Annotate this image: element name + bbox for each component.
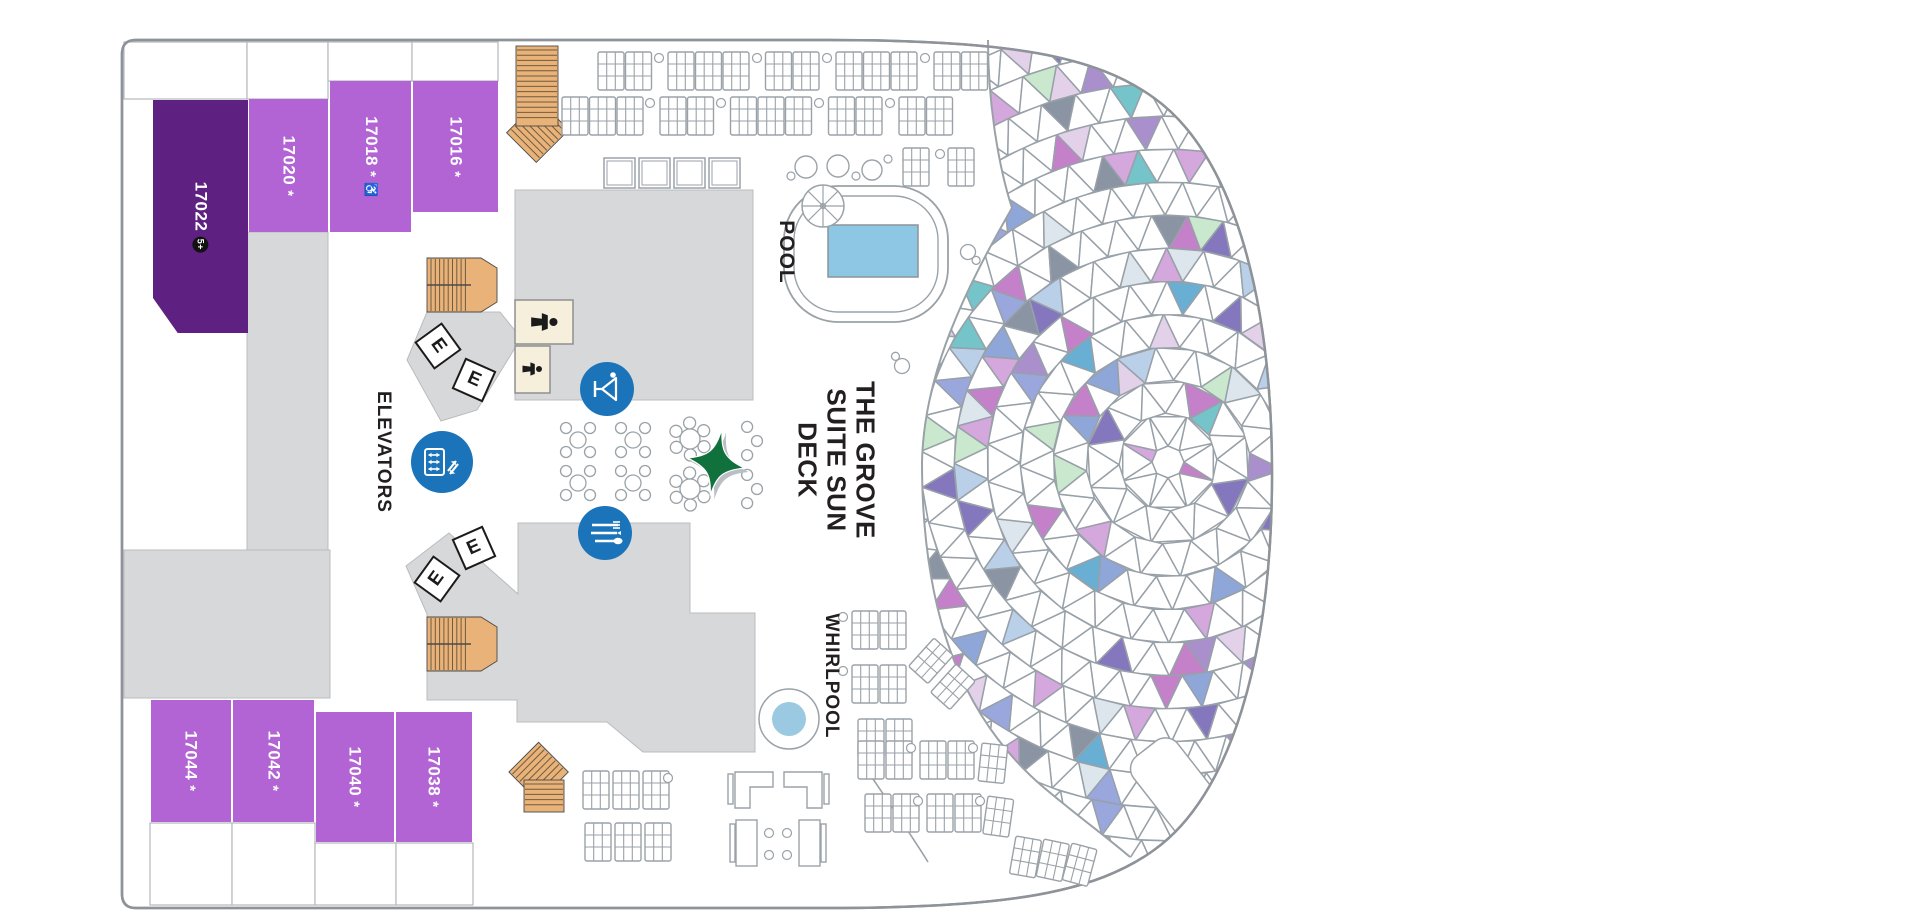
cabin-17020[interactable]: 17020*	[249, 99, 328, 232]
cabin-17044[interactable]: 17044*	[151, 700, 231, 822]
deck-name-label: THE GROVE SUITE SUN DECK	[792, 340, 879, 580]
cabin-number: 17018	[361, 116, 381, 166]
dining-icon	[578, 506, 632, 560]
cabin-17016[interactable]: 17016*	[413, 81, 498, 212]
cabin-17018[interactable]: 17018*♿	[330, 81, 411, 232]
bar-icon	[580, 362, 634, 416]
cabin-number: 17042	[264, 730, 284, 780]
cabin-number: 17016	[446, 116, 466, 166]
cabin-number: 17020	[279, 135, 299, 185]
cabin-number: 17022	[191, 181, 211, 231]
cabin-number: 17038	[424, 746, 444, 796]
accessible-icon: ♿	[364, 182, 378, 197]
cabin-number: 17040	[345, 746, 365, 796]
cabin-17038[interactable]: 17038*	[396, 712, 472, 842]
cabin-17022[interactable]: 170225+	[153, 100, 248, 333]
deck-plan: 170225+ 17020* 17018*♿ 17016* 17044* 170…	[0, 0, 1920, 923]
cabin-17042[interactable]: 17042*	[233, 700, 314, 822]
elevators-label: ELEVATORS	[372, 391, 394, 513]
cabin-badge: 5+	[193, 236, 209, 252]
cabin-17040[interactable]: 17040*	[316, 712, 394, 842]
pool-label: POOL	[774, 220, 798, 284]
whirlpool	[759, 689, 819, 749]
cabin-number: 17044	[181, 730, 201, 780]
whirlpool-label: WHIRLPOOL	[820, 613, 842, 738]
elevator-icon	[411, 431, 473, 493]
